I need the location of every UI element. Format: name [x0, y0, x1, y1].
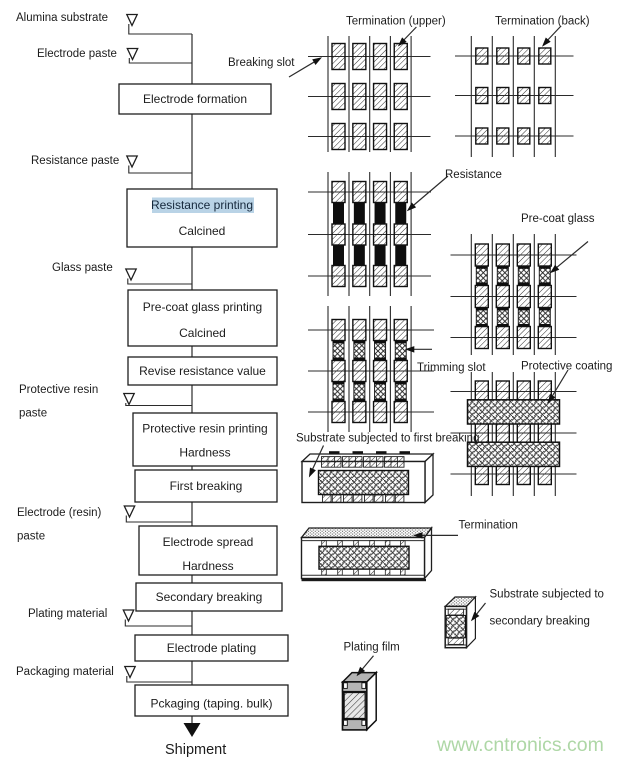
svg-text:Alumina substrate: Alumina substrate [16, 12, 108, 24]
svg-text:Breaking slot: Breaking slot [228, 57, 295, 69]
svg-text:Electrode (resin): Electrode (resin) [17, 507, 102, 519]
svg-text:Termination (back): Termination (back) [495, 16, 590, 28]
svg-text:Pre-coat glass: Pre-coat glass [521, 213, 595, 225]
svg-text:secondary breaking: secondary breaking [490, 616, 590, 628]
svg-text:Plating material: Plating material [28, 608, 107, 620]
svg-text:www.cntronics.com: www.cntronics.com [436, 734, 604, 756]
svg-text:Calcined: Calcined [179, 326, 226, 340]
svg-text:Resistance printing: Resistance printing [151, 198, 253, 212]
svg-text:First breaking: First breaking [170, 479, 243, 493]
svg-text:Protective resin printing: Protective resin printing [142, 422, 267, 436]
svg-text:Shipment: Shipment [165, 742, 226, 758]
svg-text:Hardness: Hardness [179, 446, 230, 460]
svg-text:Resistance: Resistance [445, 169, 502, 181]
svg-text:Substrate subjected to: Substrate subjected to [490, 589, 604, 601]
svg-text:Hardness: Hardness [182, 559, 233, 573]
svg-text:Protective resin: Protective resin [19, 384, 98, 396]
svg-text:Termination (upper): Termination (upper) [346, 16, 446, 28]
svg-text:Glass paste: Glass paste [52, 262, 113, 274]
svg-text:Electrode paste: Electrode paste [37, 48, 117, 60]
svg-text:Protective coating: Protective coating [521, 361, 612, 373]
svg-text:Substrate subjected to first b: Substrate subjected to first breaking [296, 433, 479, 445]
svg-text:Pckaging (taping. bulk): Pckaging (taping. bulk) [150, 697, 272, 711]
svg-text:Packaging material: Packaging material [16, 666, 114, 678]
svg-text:Secondary breaking: Secondary breaking [156, 590, 263, 604]
svg-text:Termination: Termination [459, 520, 518, 532]
svg-text:Trimming slot: Trimming slot [417, 362, 486, 374]
svg-text:Calcined: Calcined [179, 224, 226, 238]
svg-text:paste: paste [17, 531, 45, 543]
svg-text:Electrode formation: Electrode formation [143, 92, 247, 106]
svg-text:Pre-coat glass printing: Pre-coat glass printing [143, 300, 262, 314]
svg-text:Revise resistance value: Revise resistance value [139, 364, 266, 378]
svg-text:Plating film: Plating film [344, 642, 400, 654]
svg-text:Electrode spread: Electrode spread [163, 535, 254, 549]
svg-text:Resistance paste: Resistance paste [31, 155, 119, 167]
svg-text:paste: paste [19, 408, 47, 420]
svg-text:Electrode plating: Electrode plating [167, 641, 256, 655]
